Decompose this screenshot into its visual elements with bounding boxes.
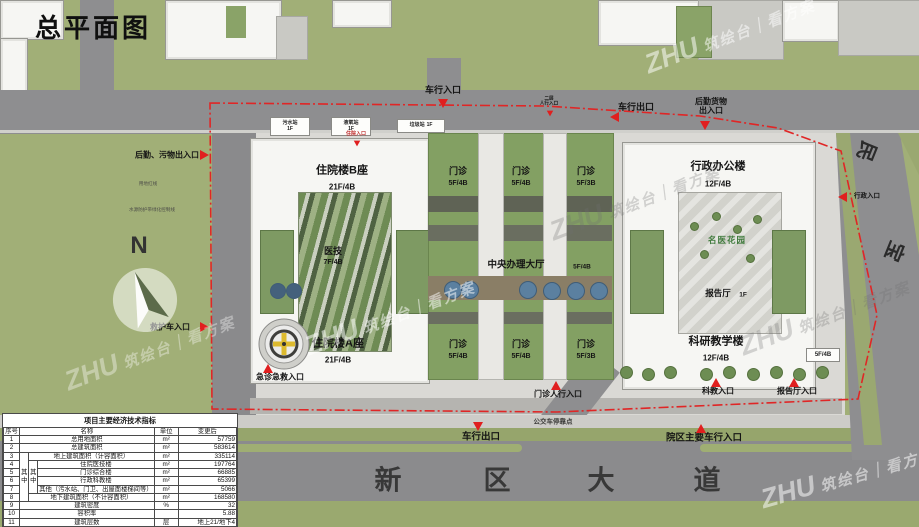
table-cell: 建筑密度 [20,502,155,510]
table-cell: 层 [154,518,178,526]
indicator-grid: 序号名称单位变更后1总用地面积m²577592总建筑面积m²5836143其中地… [3,427,237,527]
tree-icon [753,215,762,224]
master-plan-canvas: 污水站1F 液氧站1F 垃圾站 1F 5F/4B 住院楼B座 21F/4B 住院… [0,0,919,527]
tree-icon [816,366,829,379]
table-cell [154,510,178,518]
compass-icon [111,266,179,334]
avenue-name-char: 大 [588,459,615,498]
table-row: 2总建筑面积m²583614 [4,444,237,452]
utility-floor: 1F [427,123,433,129]
arrow-down-icon [473,422,483,431]
table-cell: 583614 [178,444,236,452]
table-cell: m² [154,436,178,444]
table-cell: 2 [4,444,20,452]
outpatient-band [428,133,614,380]
table-cell: 门诊综合楼 [38,469,155,477]
roof-strip [428,312,612,324]
arrow-down-icon [438,99,448,108]
garden-courtyard [678,192,782,334]
table-cell: 7 [4,485,20,493]
tree-icon [733,225,742,234]
corridor [543,133,567,380]
green-roof-wing [630,230,664,314]
table-cell: 5 [4,469,20,477]
table-cell: m² [154,460,178,468]
utility-floor: 1F [348,126,354,132]
skylight-icon [286,283,302,299]
arrow-left-icon [610,112,619,122]
tree-icon [664,366,677,379]
skylight-icon [567,282,585,300]
arrow-down-icon [547,111,554,117]
helipad-icon [257,317,311,371]
table-cell: 其他（污水站、门卫、出屋面楼梯间等） [38,485,155,493]
table-cell: 3 [4,452,20,460]
table-cell: 总用地面积 [20,436,155,444]
tree-icon [620,366,633,379]
table-cell: 其中 [20,452,29,501]
table-cell: m² [154,444,178,452]
utility-chip-sewage: 污水站1F [270,117,310,136]
table-row: 9建筑密度%32 [4,502,237,510]
skylight-icon [461,281,479,299]
buffer-note: 水源防护带绿化控制线 [129,207,175,213]
arrow-up-icon [711,378,721,387]
red-line-note: 用地红线 [139,181,157,187]
tree-icon [712,212,721,221]
utility-chip-oxygen: 液氧站1F [331,117,371,136]
arrow-right-icon [200,150,209,160]
table-cell: 容积率 [20,510,155,518]
table-cell: 9 [4,502,20,510]
avenue-name-char: 区 [484,459,511,498]
table-cell: 197764 [178,460,236,468]
arrow-right-icon [200,322,209,332]
table-row: 8地下建筑面积（不计容面积）m²168580 [4,493,237,501]
page-title: 总平面图 [35,8,151,45]
arrow-up-icon [789,378,799,387]
table-cell: m² [154,469,178,477]
table-row: 10容积率5.88 [4,510,237,518]
green-roof-wing [260,230,294,314]
utility-name: 垃圾站 [410,123,425,129]
skylight-icon [270,283,286,299]
avenue-name-char: 道 [694,459,721,498]
skylight-icon [519,281,537,299]
table-header-row: 序号名称单位变更后 [4,428,237,436]
table-cell: 地下建筑面积（不计容面积） [29,493,155,501]
economic-indicator-table: 项目主要经济技术指标 序号名称单位变更后1总用地面积m²577592总建筑面积m… [2,413,238,527]
utility-floor: 1F [287,126,293,132]
table-cell: 总建筑面积 [20,444,155,452]
table-cell: 4 [4,460,20,468]
table-cell: 名称 [20,428,155,436]
table-cell: 65399 [178,477,236,485]
table-cell: m² [154,452,178,460]
tree-icon [642,368,655,381]
table-cell: 1 [4,436,20,444]
table-row: 1总用地面积m²57759 [4,436,237,444]
table-cell: 序号 [4,428,20,436]
table-title: 项目主要经济技术指标 [3,414,237,427]
tree-icon [690,222,699,231]
table-row: 4其中住院医技楼m²197764 [4,460,237,468]
arrow-up-icon [696,424,706,433]
annex-floors: 5F/4B [815,352,831,359]
table-cell: m² [154,493,178,501]
table-cell: 行政科教楼 [38,477,155,485]
table-cell: m² [154,485,178,493]
table-cell: 地上21/地下4 [178,518,236,526]
table-cell: % [154,502,178,510]
table-row: 5门诊综合楼m²66885 [4,469,237,477]
table-cell: 5.88 [178,510,236,518]
arrow-up-icon [263,364,273,373]
table-cell: 地上建筑面积（计容面积） [29,452,155,460]
arrow-down-icon [354,141,361,147]
table-cell: 66885 [178,469,236,477]
roof-strip [428,196,612,212]
avenue-name-char: 新 [375,459,402,498]
table-row: 7其他（污水站、门卫、出屋面楼梯间等）m²5066 [4,485,237,493]
table-cell: 335114 [178,452,236,460]
table-cell: 168580 [178,493,236,501]
table-cell: 6 [4,477,20,485]
indicator-grid-body: 序号名称单位变更后1总用地面积m²577592总建筑面积m²5836143其中地… [4,428,237,527]
table-cell: 32 [178,502,236,510]
table-cell: m² [154,477,178,485]
tree-icon [746,254,755,263]
tree-icon [700,250,709,259]
medtech-courtyard [298,192,392,352]
table-cell: 8 [4,493,20,501]
table-cell: 住院医技楼 [38,460,155,468]
table-cell: 11 [4,518,20,526]
roof-strip [428,225,612,241]
tree-icon [723,366,736,379]
table-cell: 57759 [178,436,236,444]
arrow-down-icon [700,121,710,130]
table-cell: 建筑层数 [20,518,155,526]
research-annex-chip: 5F/4B [806,348,840,362]
table-cell: 5066 [178,485,236,493]
utility-chip-garbage: 垃圾站 1F [397,119,445,133]
tree-icon [747,368,760,381]
green-roof-wing [772,230,806,314]
table-row: 11建筑层数层地上21/地下4 [4,518,237,526]
corridor [478,133,504,380]
skylight-icon [543,282,561,300]
arrow-up-icon [551,381,561,390]
table-row: 6行政科教楼m²65399 [4,477,237,485]
green-roof-wing [396,230,430,314]
table-cell: 单位 [154,428,178,436]
arrow-left-icon [838,192,847,202]
table-row: 3其中地上建筑面积（计容面积）m²335114 [4,452,237,460]
table-cell: 变更后 [178,428,236,436]
table-cell: 其中 [29,460,38,493]
skylight-icon [444,281,462,299]
tree-icon [770,366,783,379]
skylight-icon [590,282,608,300]
table-cell: 10 [4,510,20,518]
